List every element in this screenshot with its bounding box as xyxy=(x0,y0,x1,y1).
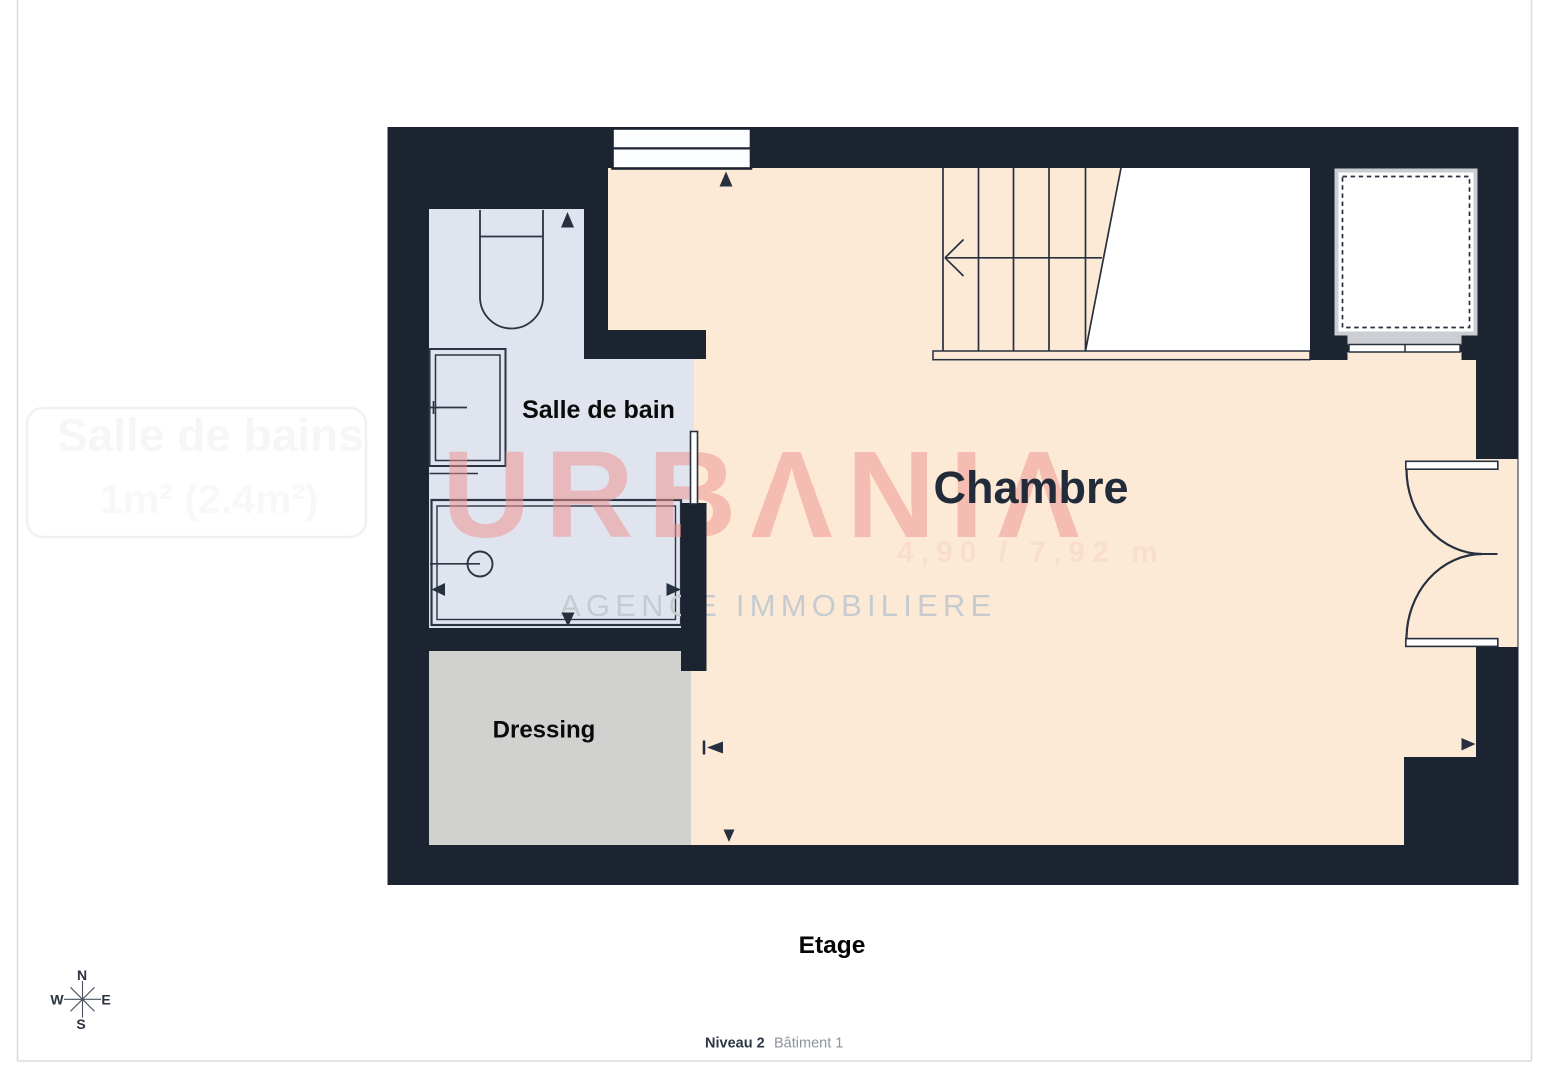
svg-text:Dressing: Dressing xyxy=(493,717,596,744)
svg-text:Niveau 2: Niveau 2 xyxy=(705,1036,765,1052)
svg-text:S: S xyxy=(76,1016,85,1032)
svg-text:W: W xyxy=(50,992,64,1008)
svg-text:1m² (2.4m²): 1m² (2.4m²) xyxy=(100,476,319,522)
svg-text:Salle de bain: Salle de bain xyxy=(522,396,675,424)
svg-text:E: E xyxy=(101,992,110,1008)
svg-text:Etage: Etage xyxy=(799,932,866,959)
svg-text:N: N xyxy=(77,967,87,983)
svg-text:Chambre: Chambre xyxy=(933,462,1128,513)
svg-text:4,90 / 7,92 m: 4,90 / 7,92 m xyxy=(897,536,1165,569)
svg-text:Salle de bains: Salle de bains xyxy=(57,409,364,461)
svg-text:Bâtiment 1: Bâtiment 1 xyxy=(774,1036,843,1052)
svg-text:AGENCE IMMOBILIERE: AGENCE IMMOBILIERE xyxy=(560,588,996,623)
